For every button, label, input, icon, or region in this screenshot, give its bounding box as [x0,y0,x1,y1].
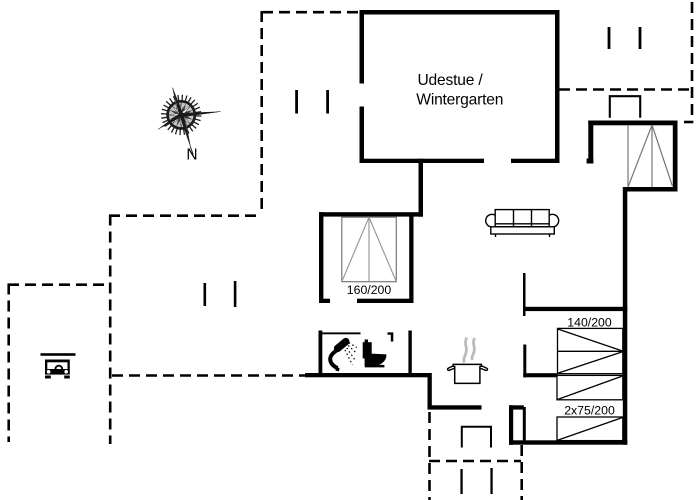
svg-text:Wintergarten: Wintergarten [416,92,503,109]
svg-text:N: N [186,147,197,164]
svg-text:2x75/200: 2x75/200 [564,403,615,417]
svg-text:160/200: 160/200 [347,283,392,297]
svg-text:Udestue /: Udestue / [418,72,484,89]
svg-text:140/200: 140/200 [567,315,612,329]
